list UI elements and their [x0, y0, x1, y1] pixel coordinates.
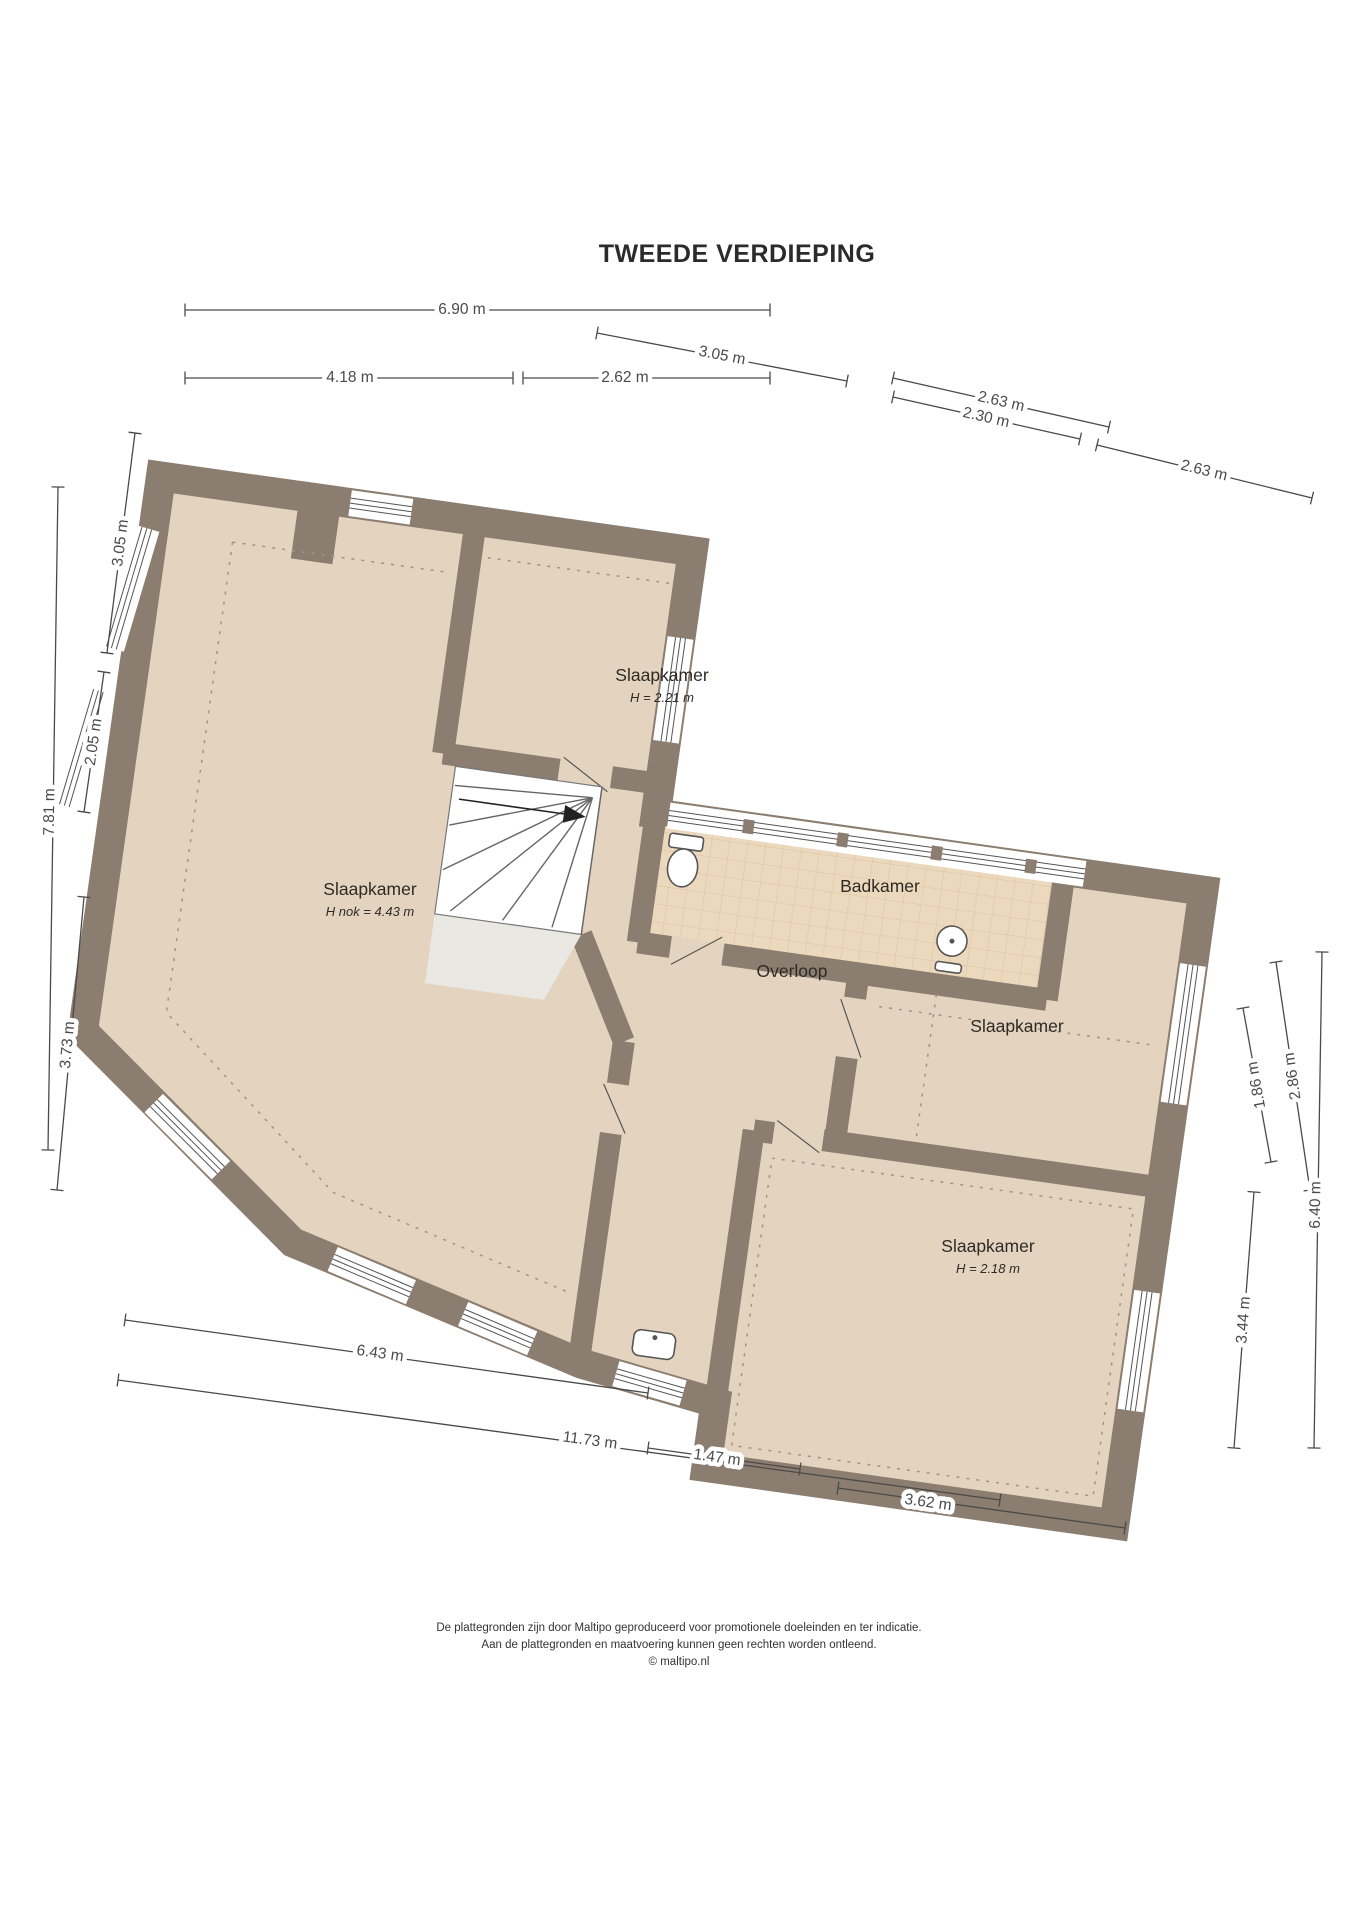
building [0, 453, 1255, 1526]
room-height-label: H nok = 4.43 m [326, 904, 415, 919]
dimension: 6.40 m [1307, 952, 1329, 1448]
room-label: Slaapkamer [941, 1236, 1035, 1256]
room: Overloop [756, 961, 827, 981]
footer: De plattegronden zijn door Maltipo gepro… [436, 1622, 921, 1668]
room-label: Badkamer [840, 876, 920, 896]
room-label: Slaapkamer [615, 665, 709, 685]
dimension-label: 4.18 m [326, 369, 373, 386]
floor-plan-page: TWEEDE VERDIEPING [0, 0, 1358, 1920]
dimension: 1.86 m [1237, 1007, 1278, 1163]
room-height-label: H = 2.21 m [630, 690, 694, 705]
dimension-label: 2.86 m [1281, 1051, 1305, 1100]
page-title: TWEEDE VERDIEPING [599, 240, 876, 268]
dimension: 2.62 m [523, 369, 770, 386]
room: Slaapkamer [970, 1016, 1064, 1036]
dimension-label: 3.05 m [697, 343, 747, 369]
dimension: 4.18 m [185, 369, 513, 386]
sink-icon [631, 1329, 676, 1361]
stairs [435, 766, 602, 934]
dimension-label: 11.73 m [562, 1428, 619, 1452]
dimension: 2.86 m [1270, 961, 1317, 1191]
dimension-label: 3.44 m [1233, 1296, 1254, 1345]
footer-line-3: © maltipo.nl [649, 1656, 710, 1668]
dimension-label: 3.73 m [57, 1021, 78, 1070]
dimension-label: 6.90 m [438, 301, 485, 318]
floor-plan: TWEEDE VERDIEPING [0, 0, 1358, 1920]
dimension-label: 2.63 m [1179, 457, 1229, 485]
room-label: Slaapkamer [323, 879, 417, 899]
dimension: 3.44 m [1228, 1191, 1261, 1448]
room-label: Slaapkamer [970, 1016, 1064, 1036]
dimension: 6.90 m [185, 301, 770, 318]
room-label: Overloop [756, 961, 827, 981]
room-height-label: H = 2.18 m [956, 1261, 1020, 1276]
footer-line-2: Aan de plattegronden en maatvoering kunn… [481, 1639, 876, 1651]
dimension: 2.63 m [1095, 439, 1313, 505]
dimension-label: 1.86 m [1244, 1060, 1269, 1110]
room: Badkamer [840, 876, 920, 896]
dimension-label: 2.62 m [601, 369, 648, 386]
dimension-label: 7.81 m [41, 788, 59, 836]
footer-line-1: De plattegronden zijn door Maltipo gepro… [436, 1622, 921, 1634]
dimension-label: 6.43 m [355, 1342, 404, 1365]
dimension-label: 6.40 m [1307, 1181, 1325, 1229]
